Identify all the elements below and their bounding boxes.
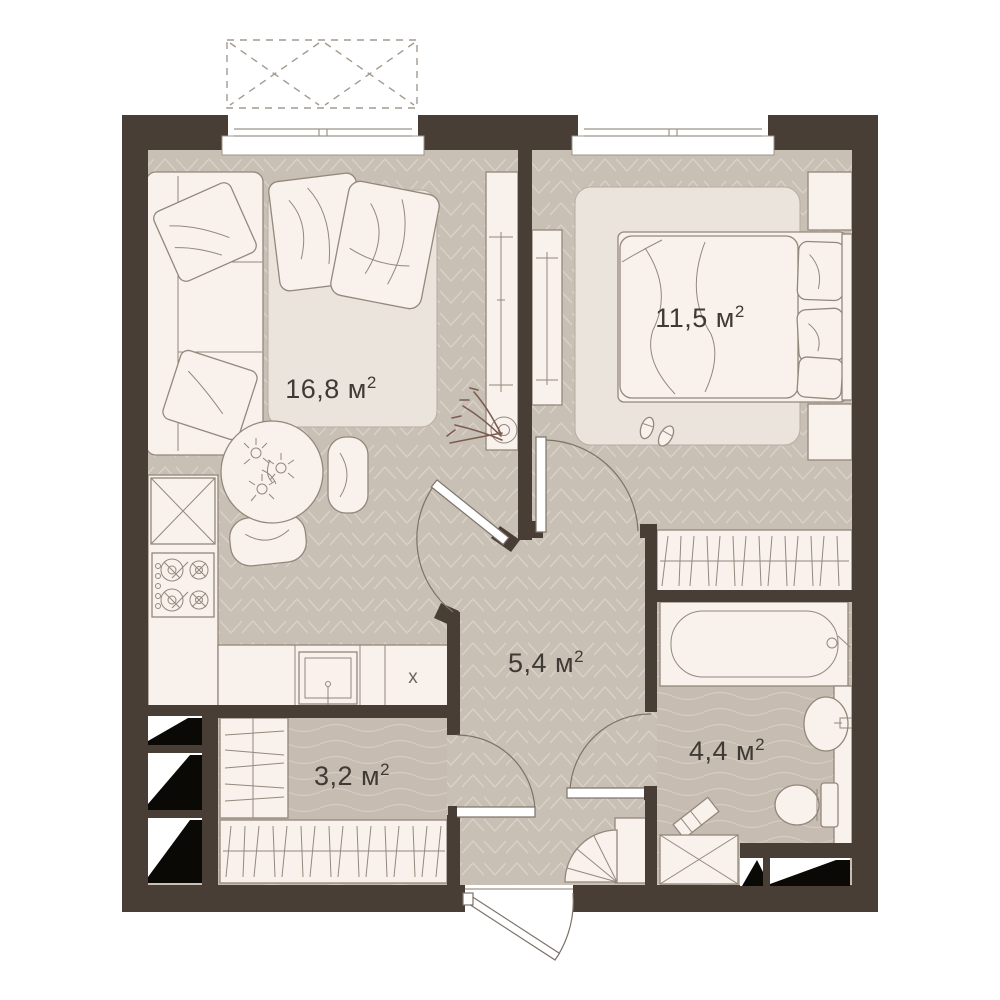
stove-icon xyxy=(152,553,214,617)
kitchen-sink xyxy=(299,652,357,710)
bathtub xyxy=(660,602,850,686)
sofa xyxy=(146,172,263,455)
hall-cabinet xyxy=(615,818,650,883)
room-area-value: 4,4 xyxy=(689,736,728,766)
bathroom-top-wall xyxy=(645,590,852,602)
room-label-hallway: 5,4м2 xyxy=(508,647,584,679)
tv-console-bedroom xyxy=(532,230,562,405)
pillow xyxy=(797,308,846,362)
living-window xyxy=(222,112,424,155)
shelving-unit xyxy=(220,718,288,818)
room-label-living: 16,8м2 xyxy=(285,373,377,405)
bedroom-wardrobe xyxy=(657,530,852,592)
nightstand xyxy=(808,172,852,230)
blanket xyxy=(268,172,442,311)
pillow xyxy=(797,241,845,301)
floor-plan: 16,8м2 11,5м2 5,4м2 3,2м2 4,4м2 x xyxy=(0,0,1000,1000)
entrance-door xyxy=(463,885,573,960)
room-label-bedroom: 11,5м2 xyxy=(655,302,745,334)
tv-console-living xyxy=(486,172,518,450)
fridge xyxy=(151,478,215,544)
toilet xyxy=(775,783,838,827)
living-bedroom-wall xyxy=(518,150,532,540)
kitchen-x-marker: x xyxy=(408,667,418,689)
bedroom-window xyxy=(572,112,774,155)
clothes-rail xyxy=(220,820,447,883)
balcony-outline xyxy=(227,40,417,108)
headboard xyxy=(842,234,852,400)
floor-plan-drawing xyxy=(0,0,1000,1000)
room-area-value: 5,4 xyxy=(508,648,547,678)
room-label-bathroom: 4,4м2 xyxy=(689,735,765,767)
room-label-wardrobe-room: 3,2м2 xyxy=(314,760,390,792)
chair xyxy=(328,437,368,513)
room-area-value: 11,5 xyxy=(655,303,708,333)
pillow xyxy=(797,357,844,400)
nightstand xyxy=(808,404,852,460)
room-area-value: 16,8 xyxy=(285,374,340,404)
room-area-value: 3,2 xyxy=(314,761,353,791)
washing-machine xyxy=(660,835,738,884)
